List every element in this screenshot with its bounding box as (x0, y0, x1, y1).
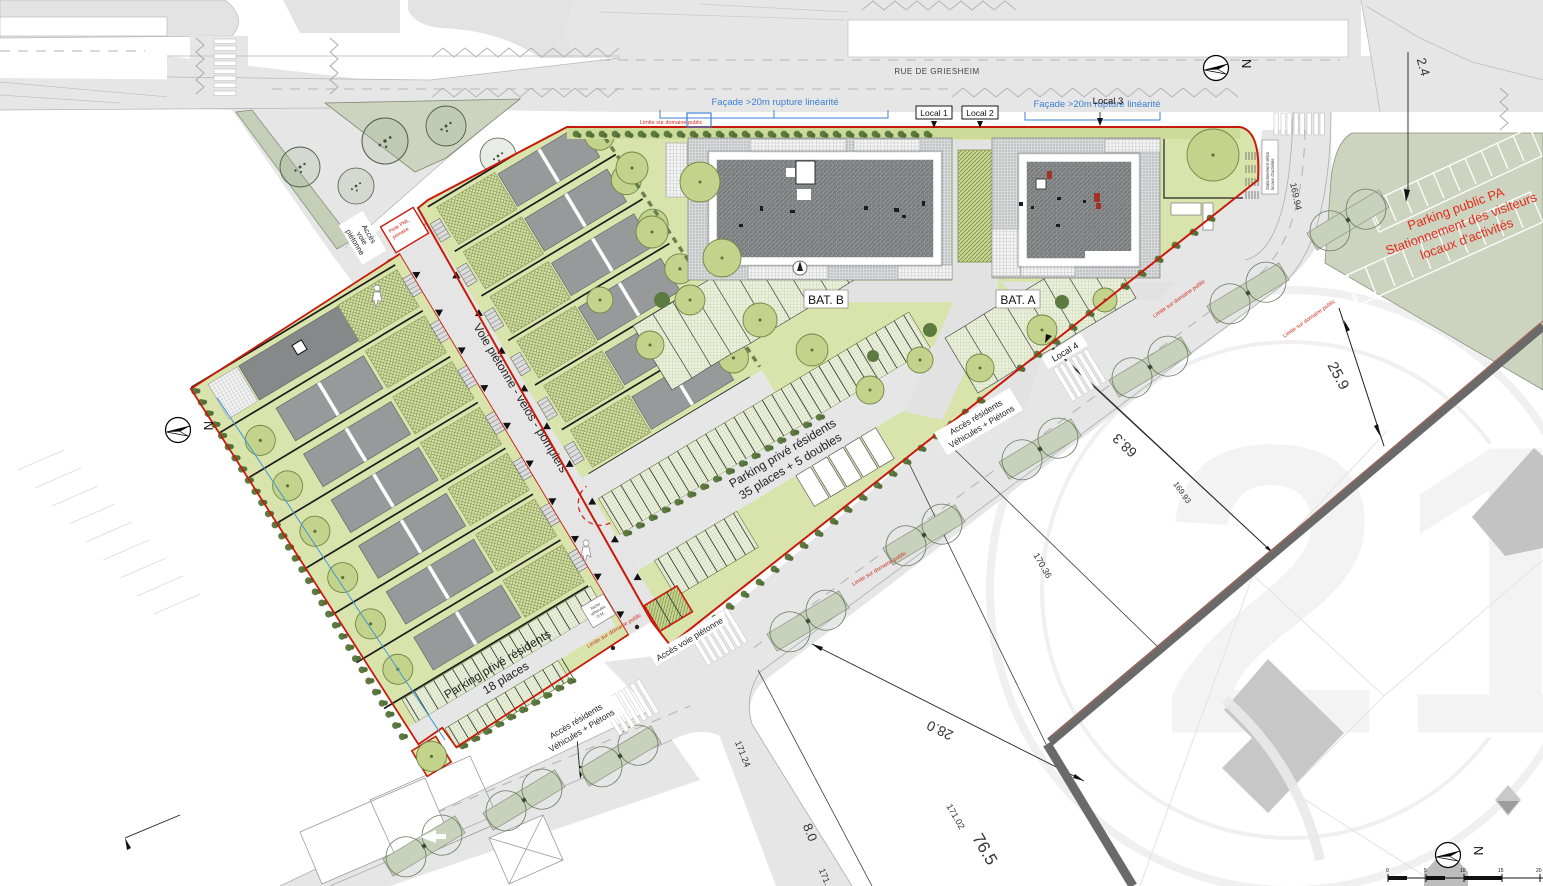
svg-text:Façade >20m rupture linéarité: Façade >20m rupture linéarité (711, 97, 838, 108)
svg-text:10: 10 (1460, 868, 1466, 874)
svg-text:Local 2: Local 2 (966, 108, 994, 118)
svg-text:15: 15 (1498, 868, 1504, 874)
svg-text:20: 20 (1536, 868, 1542, 874)
svg-text:21: 21 (1155, 356, 1543, 825)
svg-text:Local 1: Local 1 (920, 108, 948, 118)
svg-text:Limite sur domaine public: Limite sur domaine public (640, 120, 703, 126)
svg-text:locaux d'activités: locaux d'activités (1270, 158, 1275, 190)
svg-text:BAT. A: BAT. A (1000, 293, 1035, 307)
svg-text:N: N (201, 421, 216, 430)
svg-text:Local 3: Local 3 (1093, 96, 1124, 107)
svg-text:N: N (1471, 846, 1486, 855)
svg-text:N: N (1239, 59, 1254, 68)
svg-text:0: 0 (1386, 868, 1389, 874)
svg-text:BAT. B: BAT. B (808, 293, 844, 307)
svg-text:5: 5 (1424, 868, 1427, 874)
svg-text:RUE DE GRIESHEIM: RUE DE GRIESHEIM (894, 67, 979, 76)
